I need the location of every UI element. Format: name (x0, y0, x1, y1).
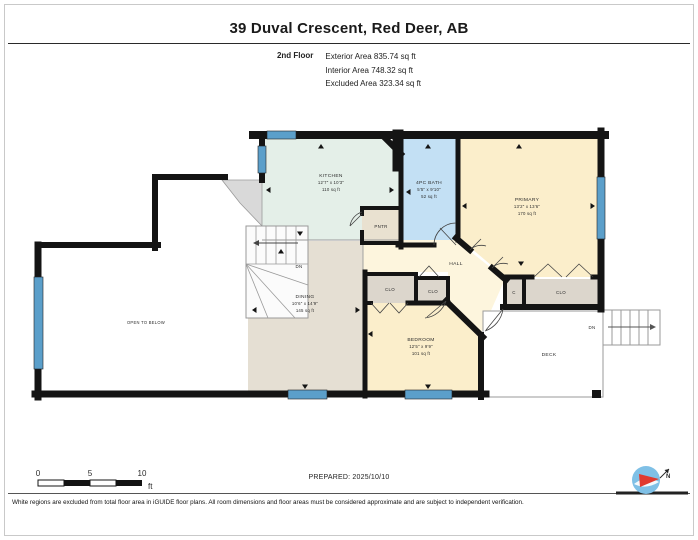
hall-label: HALL (449, 261, 462, 267)
deck-label: DECK (542, 352, 557, 358)
pantry-label: PNTR (374, 224, 387, 229)
primary-label: PRIMARY (515, 197, 540, 203)
window-kitchen-left (258, 146, 266, 173)
kitchen-area: 110 sq ft (322, 187, 341, 192)
window-open-below-left (34, 277, 43, 369)
primary-dims: 13'2" x 13'6" (514, 204, 540, 209)
open-below-label: OPEN TO BELOW (127, 320, 165, 325)
window-kitchen-top (267, 131, 296, 139)
stairs-dn-label: DN (296, 264, 303, 269)
deck-post (592, 390, 601, 398)
floor-plan-page: 39 Duval Crescent, Red Deer, AB 2nd Floo… (0, 0, 698, 540)
stair-landing (222, 180, 262, 226)
closet-primary-label: CLO (556, 290, 566, 295)
floor-plan-canvas: KITCHEN 12'7" x 10'3" 110 sq ft 4PC BATH… (0, 0, 698, 540)
kitchen-label: KITCHEN (319, 173, 343, 179)
bath-dims: 5'5" x 9'10" (417, 187, 441, 192)
disclaimer-text: White regions are excluded from total fl… (12, 499, 686, 506)
bath-label: 4PC BATH (416, 180, 442, 186)
closet-hall-1-label: CLO (385, 287, 395, 292)
deck-area (483, 310, 660, 398)
primary-area: 170 sq ft (518, 211, 537, 216)
deck-dn-label: DN (589, 325, 596, 330)
window-primary-right (597, 177, 605, 239)
scale-unit: ft (148, 482, 153, 491)
bedroom-dims: 12'5" x 9'9" (409, 344, 433, 349)
prepared-date: PREPARED: 2025/10/10 (0, 474, 698, 481)
dining-dims: 10'6" x 14'9" (292, 301, 318, 306)
dining-area: 145 sq ft (296, 308, 315, 313)
dining-label: DINING (296, 294, 315, 300)
closet-c-label: C (512, 290, 515, 295)
window-bedroom-bottom (405, 390, 452, 399)
bath-area: 52 sq ft (421, 194, 437, 199)
bedroom-label: BEDROOM (407, 337, 434, 343)
window-dining-bottom (288, 390, 327, 399)
closet-hall-2-label: CLO (428, 289, 438, 294)
kitchen-dims: 12'7" x 10'3" (318, 180, 344, 185)
bedroom-area: 101 sq ft (412, 351, 431, 356)
